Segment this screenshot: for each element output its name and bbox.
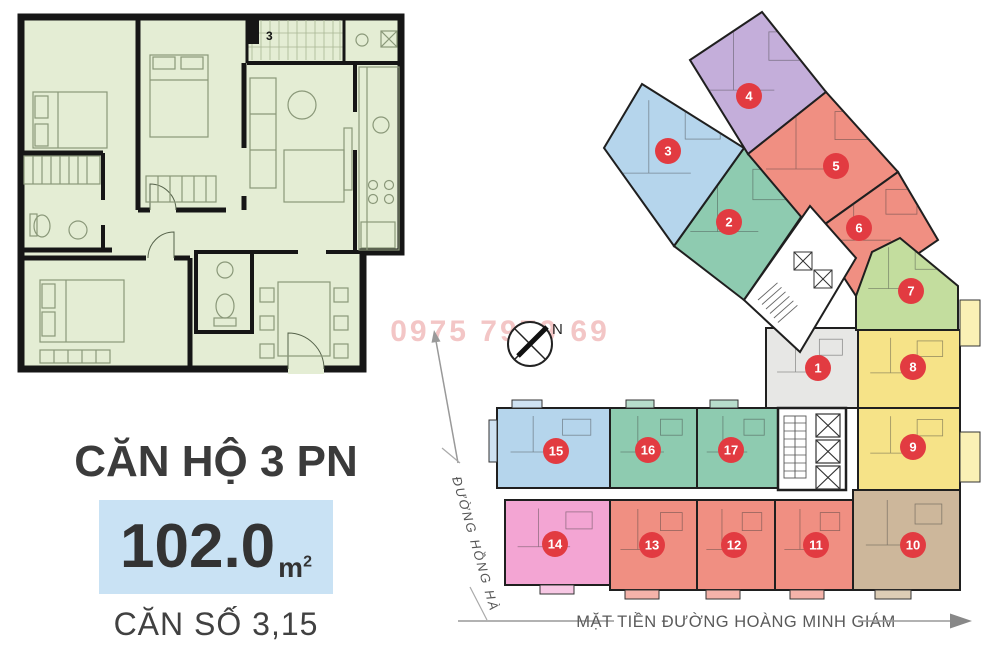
unit-marker-label-16: 16: [641, 443, 655, 458]
unit-marker-label-7: 7: [907, 284, 914, 299]
unit-marker-label-3: 3: [664, 144, 671, 159]
svg-text:ĐƯỜNG HỒNG HÀ: ĐƯỜNG HỒNG HÀ: [449, 475, 502, 614]
unit-marker-label-11: 11: [809, 538, 823, 553]
unit-marker-label-4: 4: [745, 89, 753, 104]
leader-arrow: [432, 330, 459, 463]
unit-marker-label-6: 6: [855, 221, 862, 236]
unit-marker-label-17: 17: [724, 443, 738, 458]
unit-marker-label-2: 2: [725, 215, 732, 230]
unit-marker-label-10: 10: [906, 538, 920, 553]
watermark-phone: 0975 7979 69: [390, 315, 610, 348]
units-layer: 1234567891011121314151617: [497, 12, 960, 590]
unit-marker-label-14: 14: [548, 537, 563, 552]
unit-marker-label-12: 12: [727, 538, 741, 553]
unit-marker-label-8: 8: [909, 360, 916, 375]
flyer-canvas: 3 CĂN HỘ 3 PN 102.0 m2 CĂN SỐ 3,15 0975 …: [0, 0, 1000, 656]
site-plan: 0975 7979 69 1234567891011121314151617: [0, 0, 1000, 656]
unit-marker-label-9: 9: [909, 440, 916, 455]
street-arrow-icon: [950, 614, 972, 629]
unit-marker-label-15: 15: [549, 444, 563, 459]
unit-marker-label-1: 1: [814, 361, 821, 376]
unit-marker-label-5: 5: [832, 159, 839, 174]
street-side-label: ĐƯỜNG HỒNG HÀ: [442, 448, 502, 620]
street-front-label: MẶT TIỀN ĐƯỜNG HOÀNG MINH GIÁM: [458, 612, 972, 631]
core-central: [778, 408, 846, 490]
svg-text:MẶT TIỀN ĐƯỜNG HOÀNG MINH GIÁM: MẶT TIỀN ĐƯỜNG HOÀNG MINH GIÁM: [576, 612, 895, 631]
unit-marker-label-13: 13: [645, 538, 659, 553]
compass-north-label: N: [552, 321, 563, 338]
